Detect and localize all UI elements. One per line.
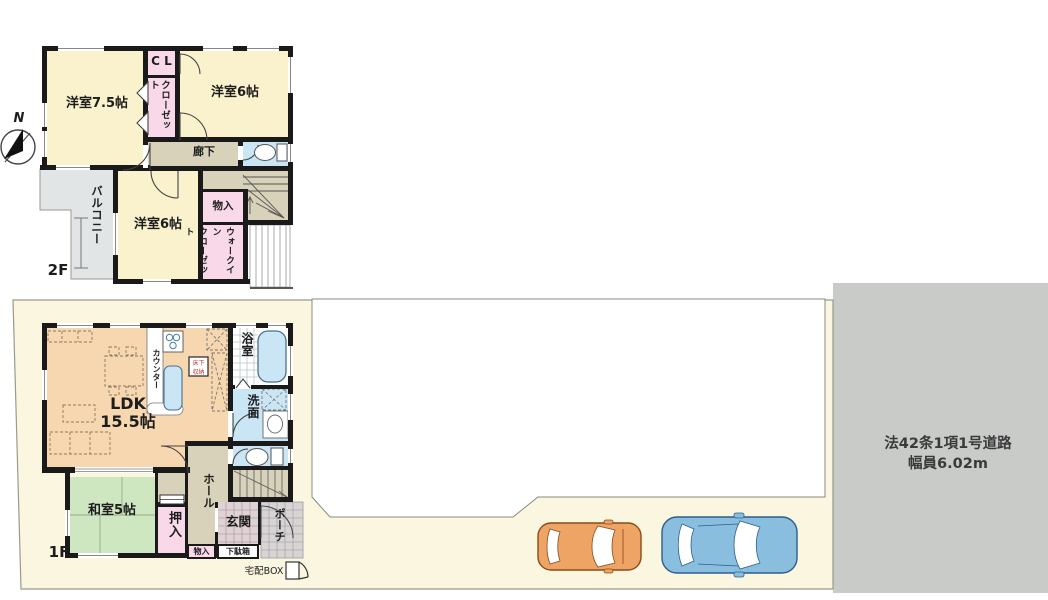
kitchen-counter (147, 325, 183, 415)
balcony-area (40, 169, 115, 279)
toilet-icon-2f (255, 144, 288, 161)
floorplan-drawing (0, 0, 1048, 600)
toilet-icon-1f (246, 448, 283, 466)
room-cl (148, 51, 175, 75)
room-hallway2f (148, 142, 238, 167)
stair-landing2f (203, 171, 243, 192)
room-wic (203, 225, 243, 279)
room-western6-lower (118, 171, 198, 279)
kitchen-sink-icon (164, 366, 182, 410)
floorplan-canvas: 洋室7.5帖 C L クローゼット 洋室6帖 廊下 物入 ウォークイン クローゼ… (0, 0, 1048, 600)
north-arrow-icon (1, 129, 35, 164)
neighbor-area (312, 299, 825, 517)
room-closet (148, 78, 175, 137)
bathtub-icon (258, 331, 286, 382)
road-area (833, 283, 1048, 593)
room-western6-upper (180, 51, 288, 137)
room-oshiire (158, 507, 185, 553)
floor2-plan (40, 46, 293, 288)
room-storage2f (203, 192, 243, 222)
room-entrance (218, 502, 258, 545)
car-top-view-icon-orange (538, 520, 641, 573)
underfloor-storage-box (189, 357, 208, 376)
sink-icon (268, 415, 283, 433)
shoe-cabinet-box (218, 545, 258, 558)
car-top-view-icon-blue (662, 513, 797, 577)
storage1f-box (188, 545, 215, 558)
stairwell-strip (250, 225, 293, 288)
room-western75 (47, 51, 143, 165)
